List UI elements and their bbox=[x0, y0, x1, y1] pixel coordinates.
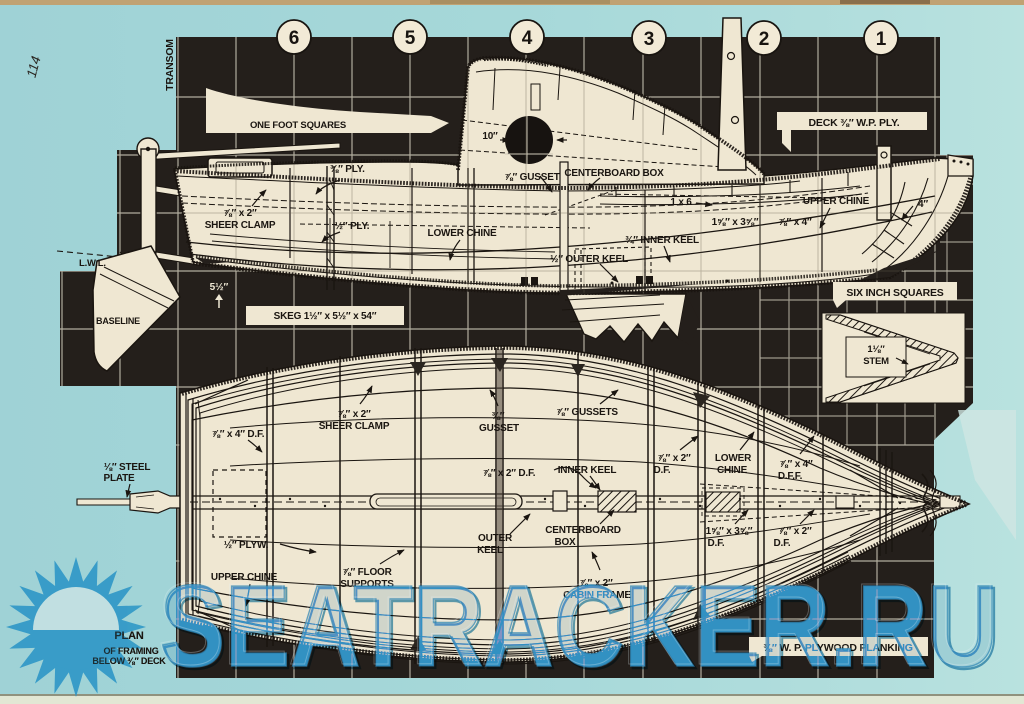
svg-text:2: 2 bbox=[759, 29, 770, 50]
svg-text:⅛″ STEEL: ⅛″ STEEL bbox=[104, 462, 151, 473]
svg-text:BELOW ⅜″ DECK: BELOW ⅜″ DECK bbox=[92, 656, 166, 666]
svg-text:⅞″ x 4″: ⅞″ x 4″ bbox=[779, 459, 813, 470]
svg-text:PLATE: PLATE bbox=[103, 473, 135, 484]
svg-text:STEM: STEM bbox=[863, 356, 889, 367]
svg-text:TRANSOM: TRANSOM bbox=[164, 39, 176, 91]
svg-text:1: 1 bbox=[876, 29, 887, 50]
svg-text:⅞″ x 2″: ⅞″ x 2″ bbox=[657, 453, 691, 464]
svg-text:¾″ INNER KEEL: ¾″ INNER KEEL bbox=[625, 235, 699, 246]
svg-text:4: 4 bbox=[522, 28, 533, 49]
svg-text:1⅝″ x 3⅝″: 1⅝″ x 3⅝″ bbox=[712, 217, 759, 228]
svg-text:LOWER: LOWER bbox=[715, 453, 752, 464]
svg-text:PLAN: PLAN bbox=[114, 630, 143, 642]
svg-text:6: 6 bbox=[289, 28, 300, 49]
svg-text:5½″: 5½″ bbox=[210, 282, 229, 293]
svg-text:CENTERBOARD BOX: CENTERBOARD BOX bbox=[564, 168, 664, 179]
svg-text:SEATRACKER.RU: SEATRACKER.RU bbox=[158, 559, 996, 689]
svg-text:D.F.: D.F. bbox=[774, 538, 791, 549]
svg-text:SHEER CLAMP: SHEER CLAMP bbox=[205, 220, 276, 231]
svg-text:5: 5 bbox=[405, 28, 416, 49]
svg-text:⅞″ x 2″: ⅞″ x 2″ bbox=[778, 526, 812, 537]
svg-text:UPPER CHINE: UPPER CHINE bbox=[803, 196, 870, 207]
svg-text:4″: 4″ bbox=[918, 199, 928, 210]
svg-text:1⅛″: 1⅛″ bbox=[867, 344, 885, 355]
svg-text:DECK ⅜″ W.P. PLY.: DECK ⅜″ W.P. PLY. bbox=[809, 117, 900, 129]
svg-text:⅞″ GUSSETS: ⅞″ GUSSETS bbox=[556, 407, 618, 418]
svg-text:⅞″ x 2″: ⅞″ x 2″ bbox=[337, 409, 371, 420]
svg-text:OUTER: OUTER bbox=[478, 533, 513, 544]
svg-text:⅞″ x 4″ D.F.: ⅞″ x 4″ D.F. bbox=[212, 429, 265, 440]
svg-text:⅞″ x 2″: ⅞″ x 2″ bbox=[223, 208, 257, 219]
svg-text:KEEL: KEEL bbox=[477, 545, 503, 556]
svg-text:½″ PLY.: ½″ PLY. bbox=[335, 221, 370, 232]
svg-text:½″ PLYW.: ½″ PLYW. bbox=[224, 540, 269, 551]
svg-text:D.F.: D.F. bbox=[654, 465, 671, 476]
svg-text:BASELINE: BASELINE bbox=[96, 316, 140, 326]
svg-text:1 x 6: 1 x 6 bbox=[670, 197, 692, 208]
svg-text:SHEER CLAMP: SHEER CLAMP bbox=[319, 421, 390, 432]
svg-text:D.F.: D.F. bbox=[708, 538, 725, 549]
svg-text:SIX INCH SQUARES: SIX INCH SQUARES bbox=[846, 287, 943, 299]
svg-text:½″ OUTER KEEL: ½″ OUTER KEEL bbox=[550, 254, 628, 265]
svg-text:⅞″ x 4″: ⅞″ x 4″ bbox=[778, 217, 812, 228]
svg-text:CHINE: CHINE bbox=[717, 465, 748, 476]
svg-text:1⅝″ x 3⅝″: 1⅝″ x 3⅝″ bbox=[706, 526, 753, 537]
svg-text:GUSSET: GUSSET bbox=[479, 423, 519, 434]
svg-text:BOX: BOX bbox=[554, 537, 576, 548]
svg-text:D.F.F.: D.F.F. bbox=[778, 471, 803, 482]
svg-text:⅞″ x 2″ D.F.: ⅞″ x 2″ D.F. bbox=[483, 468, 536, 479]
svg-text:SKEG 1½″ x 5½″ x 54″: SKEG 1½″ x 5½″ x 54″ bbox=[274, 311, 377, 322]
svg-text:3: 3 bbox=[644, 29, 655, 50]
svg-text:OF FRAMING: OF FRAMING bbox=[104, 646, 159, 656]
svg-text:INNER KEEL: INNER KEEL bbox=[558, 465, 617, 476]
svg-text:CENTERBOARD: CENTERBOARD bbox=[545, 525, 621, 536]
svg-text:⅜″: ⅜″ bbox=[492, 411, 505, 422]
svg-text:⅞″ GUSSET: ⅞″ GUSSET bbox=[504, 172, 559, 183]
svg-text:10″: 10″ bbox=[482, 131, 498, 142]
svg-text:⅜″ PLY.: ⅜″ PLY. bbox=[330, 164, 365, 175]
svg-text:ONE FOOT SQUARES: ONE FOOT SQUARES bbox=[250, 120, 346, 131]
svg-text:LOWER CHINE: LOWER CHINE bbox=[428, 228, 497, 239]
svg-text:L.W.L.: L.W.L. bbox=[79, 258, 106, 269]
